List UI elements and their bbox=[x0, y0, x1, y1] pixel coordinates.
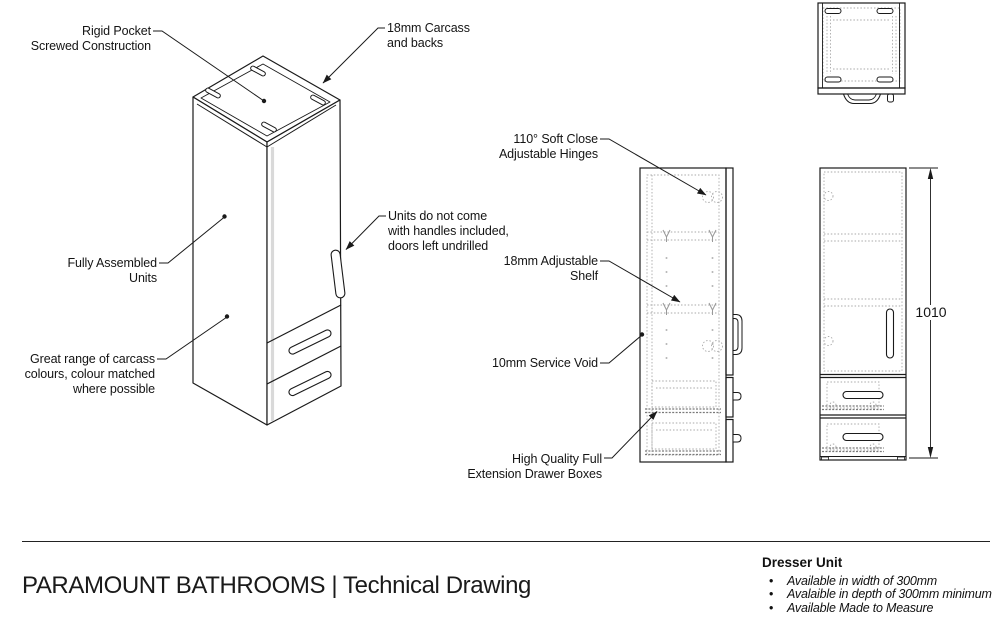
carcass-label: 18mm Carcass and backs bbox=[387, 21, 470, 51]
sheet-title: PARAMOUNT BATHROOMS | Technical Drawing bbox=[22, 573, 531, 599]
leader-service-void bbox=[600, 335, 642, 363]
top-handle-peg bbox=[888, 94, 894, 102]
product-spec-block: Dresser Unit Available in width of 300mm… bbox=[762, 555, 997, 615]
list-item: Avalaible in depth of 300mm minimum bbox=[762, 588, 997, 601]
drawing-canvas bbox=[0, 0, 1000, 620]
leader-no-handles bbox=[346, 216, 386, 250]
leader-carcass bbox=[323, 28, 385, 83]
service-void-label: 10mm Service Void bbox=[492, 356, 598, 371]
product-spec-list: Available in width of 300mm Avalaible in… bbox=[762, 575, 997, 615]
front-drawer-handle-2 bbox=[843, 434, 883, 441]
side-drawer-handle-2 bbox=[733, 435, 741, 443]
technical-drawing-sheet: Rigid Pocket Screwed Construction 18mm C… bbox=[0, 0, 1000, 620]
rigid-pocket-label: Rigid Pocket Screwed Construction bbox=[31, 24, 151, 54]
side-drawer-handle-1 bbox=[733, 393, 741, 401]
no-handles-label: Units do not come with handles included,… bbox=[388, 209, 509, 254]
drawer-boxes-label: High Quality Full Extension Drawer Boxes bbox=[467, 452, 602, 482]
list-item: Available Made to Measure bbox=[762, 602, 997, 615]
list-item: Available in width of 300mm bbox=[762, 575, 997, 588]
shelf-label: 18mm Adjustable Shelf bbox=[504, 254, 598, 284]
front-door-handle bbox=[887, 309, 894, 358]
fully-assembled-label: Fully Assembled Units bbox=[67, 256, 157, 286]
product-name: Dresser Unit bbox=[762, 555, 997, 570]
hinges-label: 110° Soft Close Adjustable Hinges bbox=[499, 132, 598, 162]
top-door-handle bbox=[844, 94, 881, 104]
footer-divider bbox=[22, 541, 990, 542]
front-drawer-handle-1 bbox=[843, 392, 883, 399]
carcass-colours-label: Great range of carcass colours, colour m… bbox=[25, 352, 155, 397]
isometric-view bbox=[193, 56, 345, 425]
height-dimension-value: 1010 bbox=[913, 305, 949, 320]
side-door-handle-profile bbox=[733, 315, 742, 355]
